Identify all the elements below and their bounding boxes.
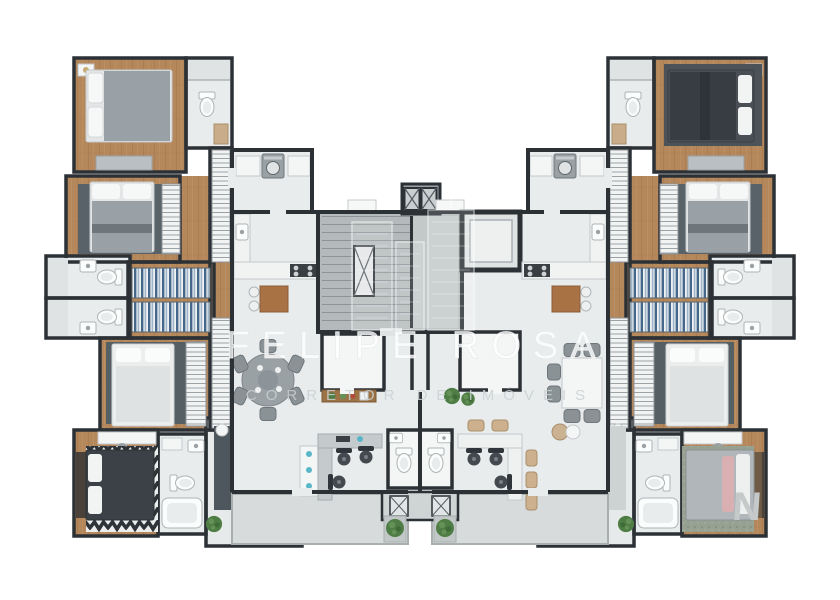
desk (458, 434, 522, 448)
wardrobe (186, 342, 206, 426)
guest-chair (468, 420, 484, 431)
floor-plan-page: FELIPE ROSA CORRETOR DE IMÓVEIS N (0, 0, 840, 600)
watermark-tagline: CORRETOR DE IMÓVEIS (246, 387, 594, 404)
hall-floor (180, 176, 212, 262)
right-unit-floor (528, 150, 608, 492)
ac-unit (348, 200, 376, 211)
bed (78, 182, 180, 254)
left-unit-floor (232, 150, 312, 492)
laundry-left (236, 154, 310, 178)
floor-plan-svg: FELIPE ROSA CORRETOR DE IMÓVEIS N (0, 0, 840, 600)
kitchen-island (552, 286, 580, 312)
bed (76, 432, 158, 532)
bush (436, 519, 454, 537)
watermark-corner-letter: N (731, 485, 763, 529)
corridor-closet (212, 150, 230, 262)
watermark-brand: FELIPE ROSA (226, 325, 607, 367)
kitchen-island (260, 286, 288, 312)
laundry-right (530, 154, 604, 178)
wardrobe (162, 184, 180, 254)
bush (386, 519, 404, 537)
bed (106, 342, 206, 426)
